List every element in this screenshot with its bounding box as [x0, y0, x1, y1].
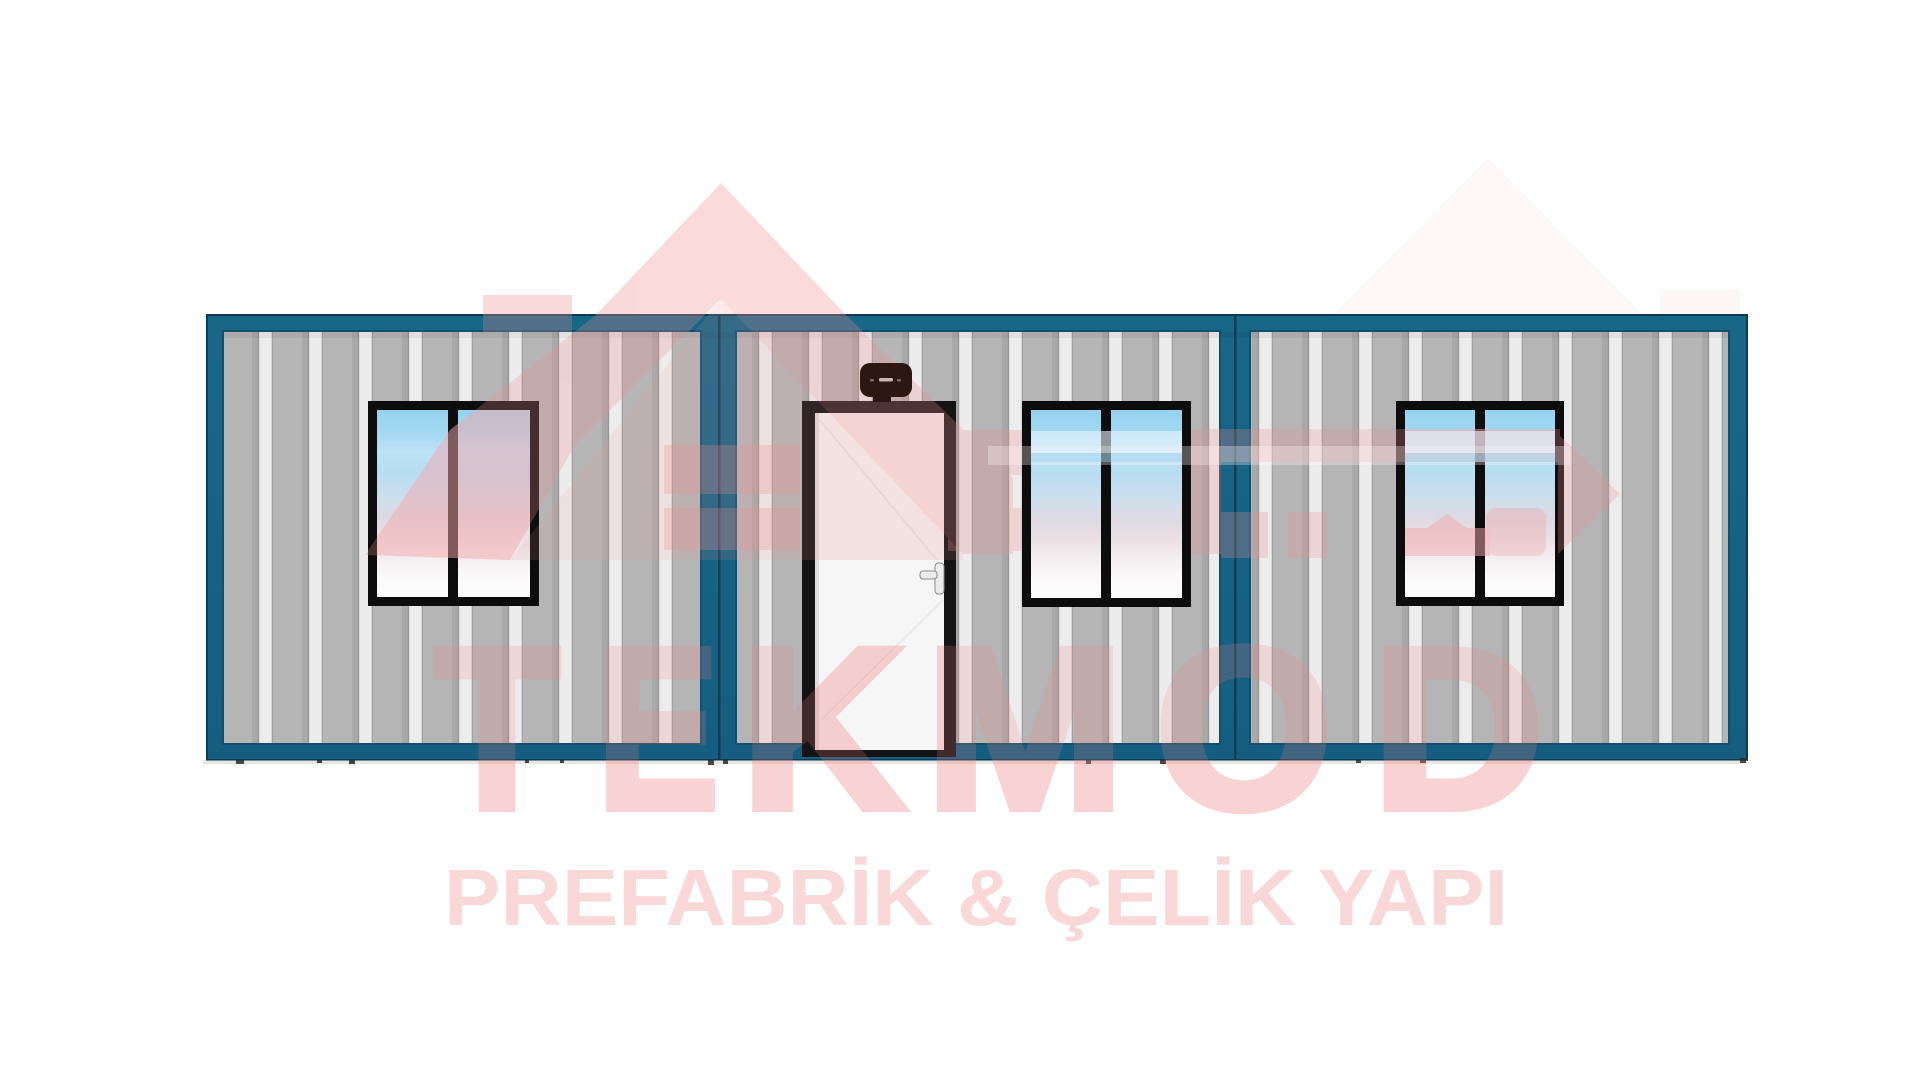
svg-text:PREFABRİK & ÇELİK YAPI: PREFABRİK & ÇELİK YAPI [444, 853, 1508, 942]
